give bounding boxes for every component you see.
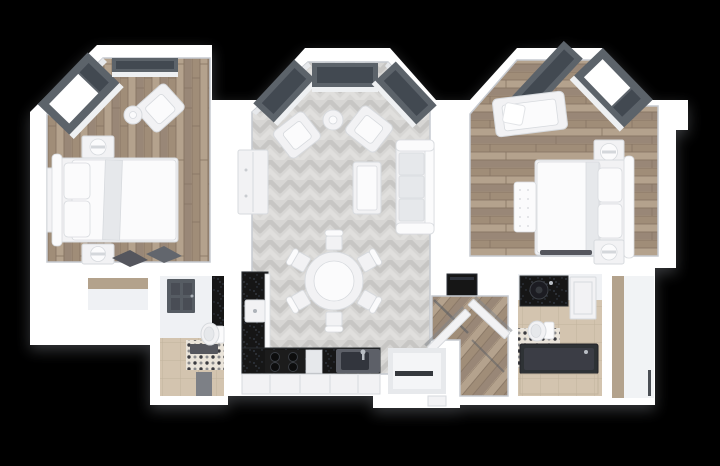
bed-bench (514, 182, 536, 232)
burner (271, 363, 280, 372)
dining-table-top (314, 261, 354, 301)
room-closet-nook (88, 278, 148, 310)
room-bathroom-left (160, 276, 224, 396)
counter-white-insert (306, 350, 322, 373)
tv-sideboard (238, 150, 268, 214)
faucet (549, 281, 553, 285)
sofa-cushion (399, 176, 424, 198)
tub-faucet (584, 350, 588, 354)
burner (289, 353, 298, 362)
fridge-gloss (450, 277, 474, 280)
headboard (624, 156, 634, 258)
vanity-right (520, 276, 568, 306)
pillow (598, 204, 622, 238)
bench-body (514, 182, 536, 232)
window-glass-dark (116, 61, 174, 69)
nightstand-tray-bar (602, 151, 616, 154)
bathtub-front (520, 374, 598, 394)
loveseat (492, 91, 568, 137)
burner (289, 363, 298, 372)
sofa-cushion (399, 153, 424, 175)
blanket-fold (103, 160, 123, 241)
toilet-seat (204, 327, 214, 341)
toilet-left (201, 323, 224, 345)
bathroom-left-counter (212, 276, 224, 326)
window-sill (312, 87, 378, 92)
door-panel (183, 298, 192, 310)
bay-window-living-center (312, 63, 378, 92)
loveseat-pillow (502, 102, 525, 125)
sofa-armrest (396, 223, 434, 234)
nightstand-left-bottom (82, 244, 114, 264)
bathroom-door (167, 279, 195, 313)
nightstand-left-top (82, 136, 114, 158)
floor-plan-svg: 3D top-down floor plan render of a two-b… (0, 0, 720, 466)
coffee-table (353, 162, 381, 214)
door-knob (191, 295, 194, 298)
headboard (52, 154, 62, 246)
side-table-top (130, 112, 137, 119)
blanket-fold (586, 162, 599, 253)
bed-left (52, 154, 178, 246)
faucet-neck (362, 352, 365, 360)
top-wall-window-bedroom-left (112, 58, 178, 77)
counter-edge (265, 274, 270, 348)
corridor-wood-wall (612, 276, 624, 398)
sideboard-knob (245, 169, 248, 172)
window-sill (112, 72, 178, 77)
pillow (64, 201, 90, 237)
entry-step (428, 396, 446, 406)
bathtub-inner (524, 348, 594, 370)
kitchen-cabinet-fronts (242, 374, 380, 394)
nightstand-tray-bar (602, 251, 616, 254)
pillow (64, 163, 90, 199)
door-panel (171, 283, 180, 295)
nightstand-tray-bar (91, 146, 105, 149)
room-corridor-right (612, 276, 654, 398)
runner-rug (196, 372, 212, 396)
dining-chair (325, 230, 343, 250)
microwave (245, 300, 265, 322)
side-table-top (329, 116, 337, 124)
bedside-rug (540, 250, 592, 255)
room-bedroom-left (38, 52, 210, 267)
apartment (30, 41, 688, 408)
corridor-threshold (648, 370, 651, 396)
sofa-backrest (425, 142, 434, 232)
bathtub (520, 344, 598, 394)
microwave-dial (253, 309, 257, 313)
room-bathroom-right (518, 274, 602, 396)
mirror-cabinet (570, 277, 596, 319)
cooktop (265, 350, 305, 373)
nightstand-right-bottom (594, 240, 624, 264)
bath-mat (190, 344, 218, 354)
door-panel (183, 283, 192, 295)
burner (271, 353, 280, 362)
kitchen-sink (336, 349, 380, 373)
door-panel (171, 298, 180, 310)
entry-door-gap (395, 371, 433, 376)
nightstand-tray-bar (91, 253, 105, 256)
sofa (396, 140, 434, 234)
sofa-armrest (396, 140, 434, 151)
dining-chair (325, 312, 343, 332)
sink-basin (341, 352, 369, 370)
closet-back-wall (88, 278, 148, 289)
floor-plan-canvas: 3D top-down floor plan render of a two-b… (0, 0, 720, 466)
pillow (598, 168, 622, 202)
sofa-cushion (399, 199, 424, 221)
coffee-table-top (357, 166, 377, 210)
sink-drain (536, 287, 543, 294)
toilet-right (528, 321, 554, 341)
sideboard-knob (245, 195, 248, 198)
toilet-seat (531, 325, 541, 338)
window-glass-dark (317, 67, 373, 83)
